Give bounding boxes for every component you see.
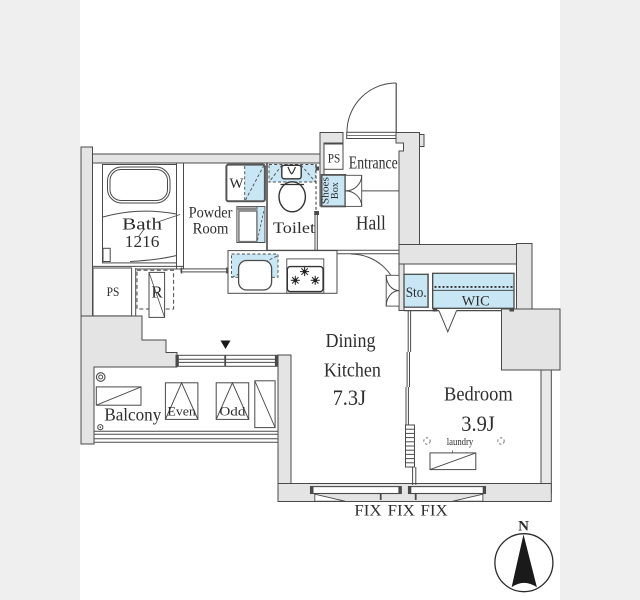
svg-text:7.3J: 7.3J — [333, 385, 367, 410]
svg-text:N: N — [518, 519, 529, 535]
svg-text:PS: PS — [107, 285, 120, 299]
svg-text:R: R — [151, 283, 163, 302]
svg-text:Powder: Powder — [189, 205, 234, 222]
svg-text:Box: Box — [330, 182, 341, 199]
svg-text:Sto.: Sto. — [406, 285, 427, 301]
svg-text:3.9J: 3.9J — [461, 411, 495, 436]
svg-text:WIC: WIC — [462, 294, 490, 310]
svg-text:Entrance: Entrance — [349, 153, 398, 173]
svg-text:Hall: Hall — [356, 214, 387, 235]
svg-text:Room: Room — [193, 221, 229, 238]
svg-text:Even: Even — [167, 404, 196, 418]
svg-text:Bedroom: Bedroom — [444, 384, 513, 406]
svg-text:W: W — [229, 176, 244, 192]
svg-text:PS: PS — [328, 152, 341, 166]
svg-text:laundry: laundry — [447, 436, 474, 448]
svg-text:Toilet: Toilet — [273, 220, 316, 237]
svg-text:FIX: FIX — [354, 503, 382, 520]
svg-text:Kitchen: Kitchen — [324, 360, 381, 382]
svg-text:FIX: FIX — [421, 503, 449, 520]
svg-text:Bath: Bath — [122, 215, 162, 234]
svg-text:Dining: Dining — [326, 330, 376, 352]
svg-text:Balcony: Balcony — [104, 405, 161, 425]
svg-text:FIX: FIX — [388, 503, 416, 520]
svg-text:Odd: Odd — [219, 404, 246, 418]
svg-text:1216: 1216 — [125, 232, 160, 251]
